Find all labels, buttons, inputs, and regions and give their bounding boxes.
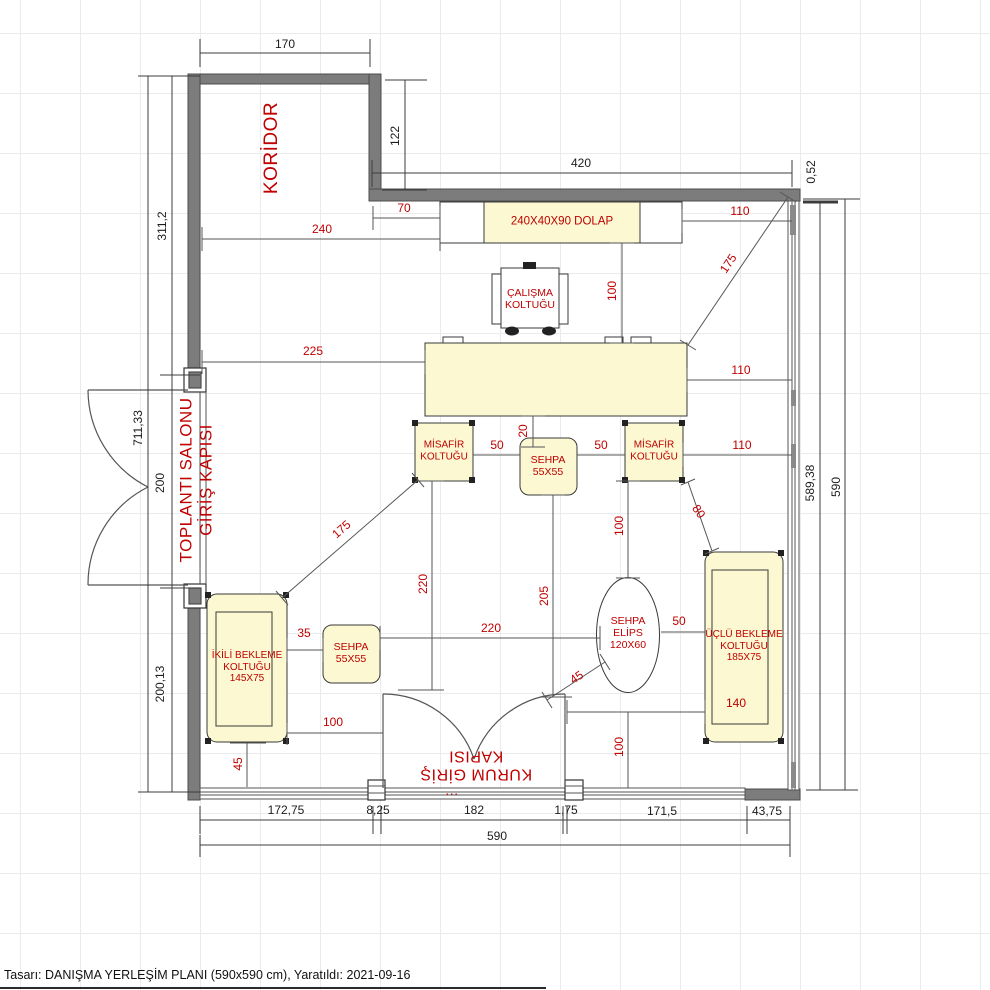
dim-182: 182: [464, 804, 484, 818]
dim-100-cabinet: 100: [606, 281, 620, 301]
wall-left-upper: [188, 74, 200, 370]
dim-220-horizontal: 220: [481, 622, 501, 636]
dim-311-2: 311,2: [156, 211, 170, 240]
dim-70: 70: [397, 202, 410, 216]
dim-171-5: 171,5: [647, 805, 677, 819]
furniture-shapes: [205, 202, 784, 744]
dim-110-desk: 110: [731, 364, 750, 378]
dim-100-bottom: 100: [613, 737, 627, 757]
coffee-table-ellipse-label: SEHPAELİPS120X60: [610, 615, 646, 651]
wall-corridor-top: [188, 74, 381, 84]
status-bar-text: Tasarı: DANIŞMA YERLEŞİM PLANI (590x590 …: [4, 968, 410, 982]
wall-corridor-right: [369, 74, 381, 201]
dim-35: 35: [297, 627, 310, 641]
dim-220-vertical: 220: [417, 574, 431, 594]
dim-100-sofa: 100: [323, 716, 343, 730]
dim-200: 200: [154, 473, 168, 493]
coffee-table-center-label: SEHPA55X55: [531, 454, 566, 478]
sofa-three-seat-label: ÜÇLÜ BEKLEMEKOLTUĞU185X75: [705, 629, 782, 664]
dim-50-ellipse: 50: [672, 615, 685, 629]
dim-140: 140: [726, 697, 746, 711]
door-arc-left-bottom: [88, 487, 148, 585]
dim-50-left: 50: [490, 439, 503, 453]
dim-43-75: 43,75: [752, 805, 782, 819]
dim-420: 420: [571, 157, 591, 171]
room-label-entrance-dots: ...: [445, 782, 458, 798]
dim-0-52: 0,52: [805, 160, 819, 183]
room-label-entrance-line2: KAPISI: [449, 747, 504, 764]
dim-590-right: 590: [830, 477, 844, 497]
dim-1-75: 1,75: [554, 804, 577, 818]
doors: [88, 368, 583, 800]
dim-45-left: 45: [232, 757, 246, 770]
wall-left-lower: [188, 606, 200, 800]
dim-122: 122: [389, 126, 403, 146]
room-label-meeting-door-line1: TOPLANTI SALONU: [176, 398, 195, 563]
dim-590-bottom: 590: [487, 830, 507, 844]
dim-20: 20: [517, 424, 531, 437]
dim-110-top: 110: [730, 205, 749, 219]
room-label-corridor: KORİDOR: [261, 102, 283, 194]
room-label-entrance-door: KURUM GİRİŞKAPISI: [420, 746, 532, 783]
room-label-meeting-door-line2: GİRİŞ KAPISI: [196, 424, 215, 536]
coffee-table-left-label: SEHPA55X55: [334, 641, 369, 665]
guest-chair-left-label: MİSAFİRKOLTUĞU: [420, 440, 468, 463]
dim-170: 170: [275, 38, 295, 52]
guest-chair-right-label: MİSAFİRKOLTUĞU: [630, 440, 678, 463]
dim-240: 240: [312, 223, 332, 237]
dim-172-75: 172,75: [268, 804, 305, 818]
desk: [425, 343, 687, 416]
dim-50-right: 50: [594, 439, 607, 453]
dim-200-13: 200,13: [154, 666, 168, 703]
cabinet-label: 240X40X90 DOLAP: [511, 215, 613, 228]
door-jamb-bottom-right: [565, 780, 583, 800]
dim-110-chair: 110: [732, 439, 751, 453]
dim-100-middle: 100: [613, 516, 627, 536]
status-bar-underline: [0, 987, 546, 989]
room-label-meeting-door: TOPLANTI SALONUGİRİŞ KAPISI: [176, 398, 215, 563]
room-label-entrance-line1: KURUM GİRİŞ: [420, 765, 532, 782]
dim-225: 225: [303, 345, 323, 359]
window-bottom: [200, 788, 745, 799]
window-right: [788, 201, 799, 790]
floor-plan-canvas: KORİDOR TOPLANTI SALONUGİRİŞ KAPISI KURU…: [0, 0, 990, 990]
dim-589-38: 589,38: [804, 465, 818, 502]
wall-bottom-right-block: [745, 789, 800, 800]
office-chair-label: ÇALIŞMAKOLTUĞU: [505, 287, 555, 311]
dim-205: 205: [538, 586, 552, 606]
sofa-two-seat-label: İKİLİ BEKLEMEKOLTUĞU145X75: [212, 650, 283, 685]
dim-8-25: 8,25: [366, 804, 389, 818]
dim-711-33: 711,33: [132, 410, 146, 446]
wall-main-top: [369, 189, 800, 201]
